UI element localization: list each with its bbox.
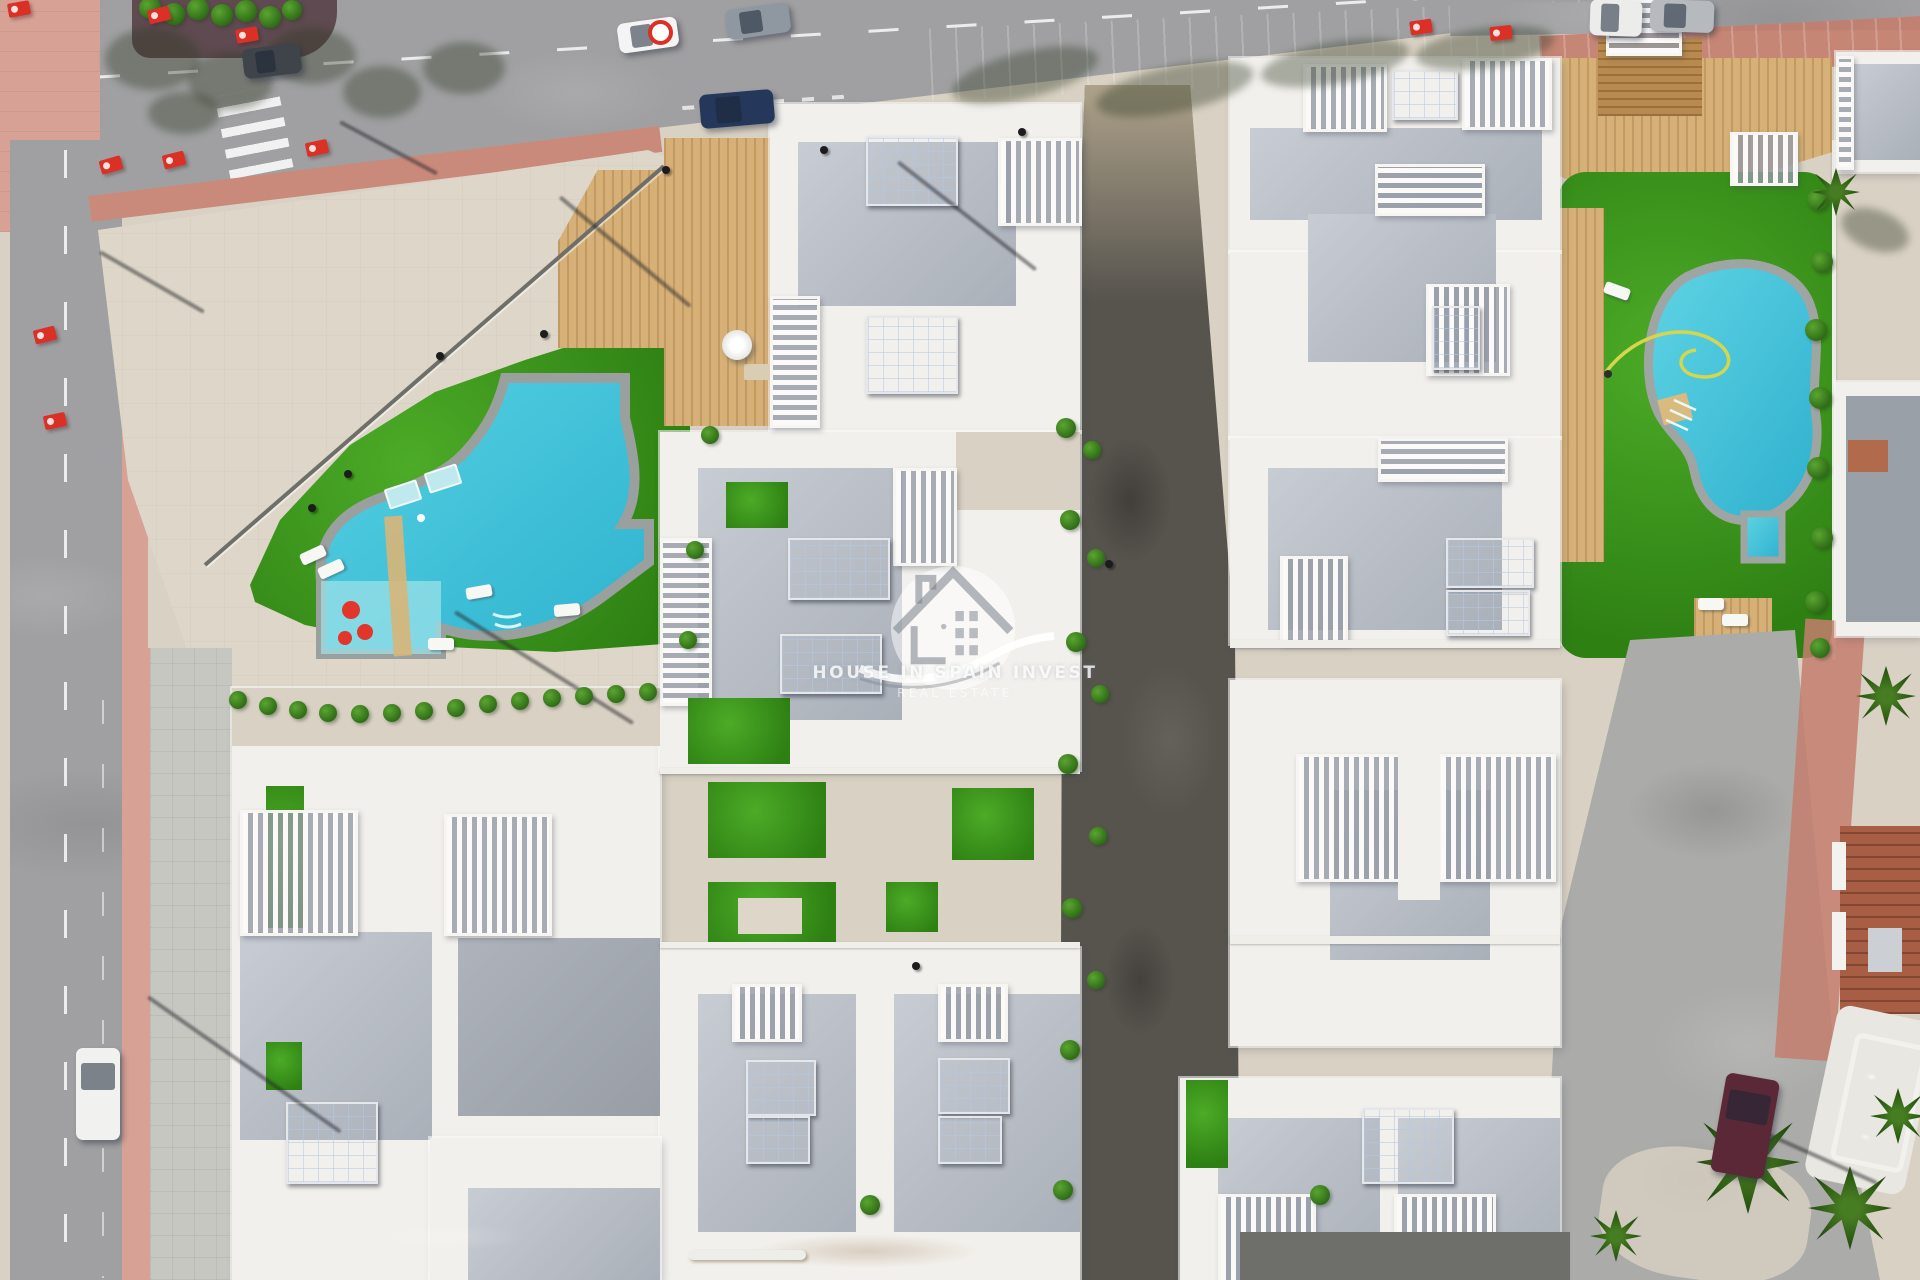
garden-hose — [1596, 312, 1768, 416]
left-pool — [293, 366, 697, 668]
garden-wall — [660, 768, 1080, 774]
solar-panels — [866, 136, 958, 206]
center-garden-lawn — [886, 882, 938, 932]
construction-pipe — [688, 1250, 806, 1260]
terracotta-tile-patch — [1848, 440, 1888, 472]
terracotta-roof-unit — [1868, 928, 1902, 972]
tree-shadow — [1835, 199, 1914, 261]
terracotta-balcony — [1832, 842, 1846, 890]
corner-building-roof — [1850, 64, 1920, 160]
right-plot-pergola-frame — [1606, 0, 1682, 56]
left-road-dashes — [64, 150, 67, 1276]
villa-r5-lawn — [1186, 1080, 1228, 1168]
palm-tree — [1856, 666, 1916, 726]
garden-wall — [1230, 936, 1560, 944]
left-road-dashes — [102, 700, 104, 1278]
solar-panels — [780, 634, 882, 694]
villa-c2-lawn — [726, 482, 788, 528]
villa-c2-lawn — [688, 698, 790, 764]
center-garden-lawn — [708, 782, 826, 858]
solar-panels — [1392, 70, 1458, 120]
villa-left-front-sand — [232, 688, 660, 746]
garden-wall — [1230, 640, 1560, 648]
patio-umbrella — [722, 330, 752, 360]
villa-c3-divider — [856, 994, 894, 1236]
right-pool — [1626, 248, 1840, 592]
left-walkway-pink-strip — [126, 648, 150, 1280]
villa-r3-pergola — [1280, 556, 1348, 644]
solar-panels — [866, 316, 958, 394]
villa-c1-pergola — [998, 138, 1082, 226]
terracotta-building — [1840, 826, 1920, 1014]
solar-panels — [1362, 1108, 1454, 1184]
villa-r1-pergola — [1303, 64, 1387, 132]
villa-r4-divider — [1398, 738, 1440, 900]
solar-panels — [1446, 590, 1530, 636]
villa-r1-pergola — [1462, 58, 1552, 130]
solar-panels — [938, 1058, 1010, 1114]
villa-left-pergola — [444, 814, 552, 936]
solar-panels — [746, 1060, 816, 1116]
villa-c3-pergola — [732, 984, 802, 1042]
center-garden-pad — [738, 898, 802, 934]
villa-c1-railing — [770, 296, 820, 428]
villa-r2-pergola — [1375, 164, 1485, 216]
villa-c2-pergola — [660, 538, 712, 706]
solar-panels — [788, 538, 890, 600]
villa-c2-stairs — [893, 468, 957, 566]
center-garden-lawn — [952, 788, 1034, 860]
bottom-right-road-patch — [1240, 1232, 1570, 1280]
left-walkway — [150, 648, 232, 1280]
solar-panels — [1446, 538, 1534, 588]
villa-c1-deck-garden — [664, 138, 770, 426]
villa-left-roof-terrace — [458, 938, 660, 1116]
villa-r3-railing — [1378, 438, 1508, 482]
terracotta-balcony — [1832, 912, 1846, 970]
villa-left-lawn-small — [266, 1042, 302, 1090]
villa-r4-pergola — [1296, 754, 1412, 882]
patio-table — [744, 364, 770, 380]
right-mid-building-roof — [1846, 396, 1920, 622]
aerial-photo-of-villa-development: HOUSE IN SPAIN INVEST REAL ESTATE — [0, 0, 1920, 1280]
solar-panels — [938, 1116, 1002, 1164]
villa-c2-side-court — [956, 432, 1080, 510]
corner-building-railing — [1836, 56, 1854, 170]
villa-c3-pergola — [938, 984, 1008, 1042]
solar-panels — [286, 1102, 378, 1184]
villa-r4-pergola — [1438, 754, 1556, 882]
bottom-dirt-strip — [128, 1208, 1184, 1280]
solar-panels — [1432, 306, 1480, 370]
garden-wall — [660, 942, 1080, 948]
right-plot-pergola-frame — [1730, 132, 1798, 186]
villa-left-pergola — [240, 810, 358, 936]
solar-panels — [746, 1116, 810, 1164]
street-median-hedge-curb — [132, 0, 337, 58]
